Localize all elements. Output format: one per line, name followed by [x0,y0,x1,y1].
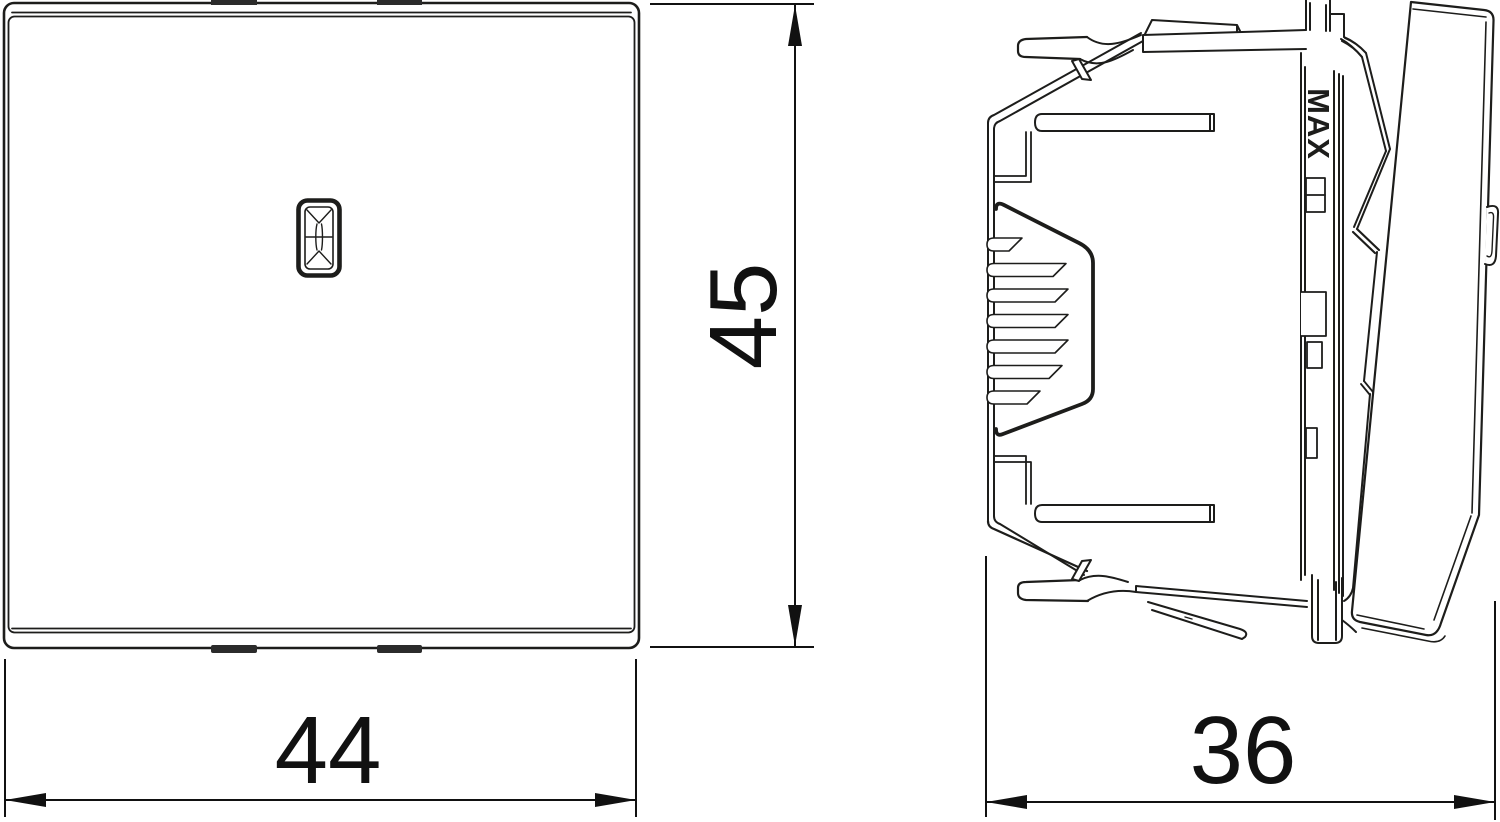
support-ledge-bottom [1035,505,1214,522]
front-view [4,0,639,653]
technical-drawing: MAX 45 44 36 [0,0,1500,822]
mounting-tab-top-left [211,0,257,5]
bottom-flange [1136,586,1307,607]
grille-slot [987,391,1040,404]
arrowhead-down [788,605,802,646]
rocker-paddle [1352,2,1498,642]
grille-slot [987,315,1068,328]
switch-plate-outline [4,3,639,648]
dimension-label-depth: 36 [1190,697,1297,804]
fixing-tower-top [1306,0,1366,57]
mounting-tab-top-right [377,0,422,5]
side-view: MAX [987,0,1498,643]
dimension-label-width: 44 [275,697,382,804]
dimension-label-height: 45 [690,263,797,370]
grille-slot [987,264,1066,277]
dimension-height: 45 [650,4,814,647]
support-ledge-top [1035,114,1214,131]
fixing-claw-top [1018,35,1141,80]
technical-drawing-page: MAX 45 44 36 [0,0,1500,822]
dimension-width: 44 [5,659,636,817]
clamp-window-lower [1306,428,1317,458]
top-flange [1143,20,1306,52]
grille-slot [987,238,1022,251]
mounting-tab-bottom-left [211,645,257,653]
arrowhead-left [986,795,1027,809]
grille-slot [987,366,1062,379]
max-label: MAX [1301,88,1336,160]
wall-latch-step [1301,292,1326,336]
arrowhead-up [788,5,802,46]
fixing-claw-bottom [988,516,1136,601]
grille-slot [987,340,1068,353]
vent-grille [987,204,1093,435]
grille-slot [987,289,1068,302]
arrowhead-right [595,793,636,807]
clamp-window-small [1307,342,1322,368]
paddle-side-catch [1485,206,1498,265]
arrowhead-left [5,793,46,807]
arrowhead-right [1454,795,1495,809]
mounting-tab-bottom-right [377,645,422,653]
clamp-window-double [1306,178,1325,212]
bottom-horn [1148,602,1246,639]
